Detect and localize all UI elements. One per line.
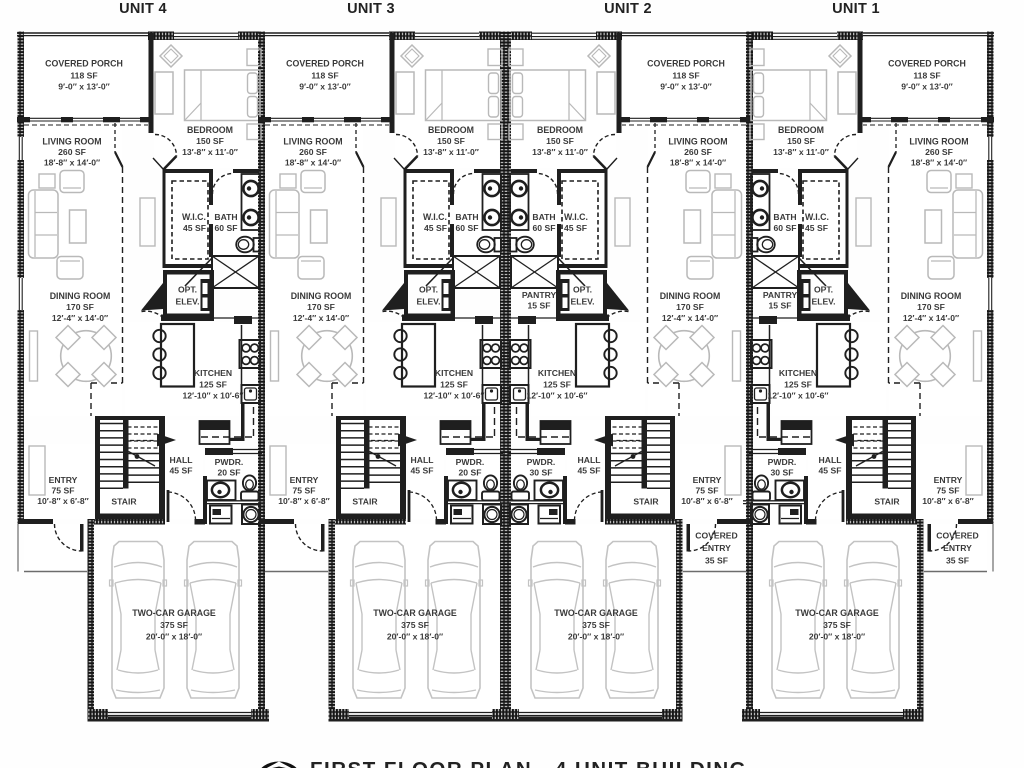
svg-text:12′-4″ x 14′-0″: 12′-4″ x 14′-0″	[903, 313, 959, 323]
svg-text:150 SF: 150 SF	[546, 136, 574, 146]
svg-text:75 SF: 75 SF	[937, 486, 960, 496]
svg-text:118 SF: 118 SF	[70, 71, 97, 81]
svg-text:9′-0″ x 13′-0″: 9′-0″ x 13′-0″	[660, 82, 712, 92]
svg-text:375 SF: 375 SF	[160, 620, 188, 630]
svg-text:45 SF: 45 SF	[819, 466, 842, 476]
svg-text:30 SF: 30 SF	[771, 468, 794, 478]
svg-text:60 SF: 60 SF	[774, 223, 797, 233]
svg-text:45 SF: 45 SF	[183, 223, 206, 233]
svg-text:TWO-CAR GARAGE: TWO-CAR GARAGE	[373, 608, 457, 618]
svg-text:ENTRY: ENTRY	[702, 543, 731, 553]
svg-text:13′-8″ x 11′-0″: 13′-8″ x 11′-0″	[773, 147, 829, 157]
svg-text:TWO-CAR GARAGE: TWO-CAR GARAGE	[554, 608, 638, 618]
svg-text:COVERED PORCH: COVERED PORCH	[888, 59, 966, 69]
svg-text:10′-8″ x 6′-8″: 10′-8″ x 6′-8″	[922, 496, 974, 506]
svg-text:75 SF: 75 SF	[293, 486, 316, 496]
svg-text:TWO-CAR GARAGE: TWO-CAR GARAGE	[132, 608, 216, 618]
svg-text:DINING ROOM: DINING ROOM	[901, 291, 962, 301]
svg-text:375 SF: 375 SF	[401, 620, 429, 630]
svg-text:UNIT 4: UNIT 4	[119, 1, 167, 17]
svg-text:COVERED PORCH: COVERED PORCH	[286, 59, 364, 69]
svg-text:ELEV.: ELEV.	[570, 297, 594, 307]
svg-text:260 SF: 260 SF	[58, 147, 86, 157]
svg-text:35 SF: 35 SF	[705, 556, 728, 566]
svg-text:PWDR.: PWDR.	[768, 457, 797, 467]
svg-text:12′-4″ x 14′-0″: 12′-4″ x 14′-0″	[662, 313, 718, 323]
svg-text:PWDR.: PWDR.	[215, 457, 244, 467]
svg-text:DINING ROOM: DINING ROOM	[291, 291, 352, 301]
svg-text:ELEV.: ELEV.	[175, 297, 199, 307]
svg-text:ELEV.: ELEV.	[416, 297, 440, 307]
svg-text:12′-10″ x 10′-6″: 12′-10″ x 10′-6″	[423, 391, 484, 401]
svg-text:DINING ROOM: DINING ROOM	[660, 291, 721, 301]
svg-text:20′-0″ x 18′-0″: 20′-0″ x 18′-0″	[809, 632, 865, 642]
svg-text:45 SF: 45 SF	[170, 466, 193, 476]
svg-text:KITCHEN: KITCHEN	[435, 368, 473, 378]
svg-text:OPT.: OPT.	[814, 285, 833, 295]
svg-text:260 SF: 260 SF	[299, 147, 327, 157]
svg-text:10′-8″ x 6′-8″: 10′-8″ x 6′-8″	[278, 496, 330, 506]
svg-text:BEDROOM: BEDROOM	[187, 125, 233, 135]
svg-text:UNIT 2: UNIT 2	[604, 1, 652, 17]
svg-text:13′-8″ x 11′-0″: 13′-8″ x 11′-0″	[532, 147, 588, 157]
svg-text:COVERED: COVERED	[936, 531, 979, 541]
svg-text:ENTRY: ENTRY	[943, 543, 972, 553]
svg-text:12′-4″ x 14′-0″: 12′-4″ x 14′-0″	[52, 313, 108, 323]
svg-text:45 SF: 45 SF	[578, 466, 601, 476]
svg-text:PANTRY: PANTRY	[522, 290, 557, 300]
svg-text:ELEV.: ELEV.	[811, 297, 835, 307]
svg-text:STAIR: STAIR	[352, 497, 378, 507]
svg-text:15 SF: 15 SF	[528, 301, 551, 311]
svg-text:12′-10″ x 10′-6″: 12′-10″ x 10′-6″	[182, 391, 243, 401]
svg-text:LIVING ROOM: LIVING ROOM	[283, 137, 342, 147]
svg-text:75 SF: 75 SF	[696, 486, 719, 496]
svg-text:COVERED PORCH: COVERED PORCH	[647, 59, 725, 69]
svg-text:PWDR.: PWDR.	[456, 457, 485, 467]
svg-text:45 SF: 45 SF	[424, 223, 447, 233]
svg-text:KITCHEN: KITCHEN	[779, 368, 817, 378]
svg-text:375 SF: 375 SF	[582, 620, 610, 630]
svg-text:170 SF: 170 SF	[307, 302, 335, 312]
svg-text:170 SF: 170 SF	[66, 302, 94, 312]
svg-text:9′-0″ x 13′-0″: 9′-0″ x 13′-0″	[299, 82, 351, 92]
svg-text:20′-0″ x 18′-0″: 20′-0″ x 18′-0″	[146, 632, 202, 642]
svg-text:118 SF: 118 SF	[311, 71, 338, 81]
svg-text:TWO-CAR GARAGE: TWO-CAR GARAGE	[795, 608, 879, 618]
svg-text:BEDROOM: BEDROOM	[428, 125, 474, 135]
svg-text:125 SF: 125 SF	[543, 380, 571, 390]
svg-text:W.I.C.: W.I.C.	[564, 212, 588, 222]
svg-text:OPT.: OPT.	[178, 285, 197, 295]
svg-text:BEDROOM: BEDROOM	[537, 125, 583, 135]
svg-text:18′-8″ x 14′-0″: 18′-8″ x 14′-0″	[44, 158, 100, 168]
svg-text:118 SF: 118 SF	[672, 71, 699, 81]
svg-text:170 SF: 170 SF	[917, 302, 945, 312]
svg-text:COVERED: COVERED	[695, 531, 738, 541]
svg-text:STAIR: STAIR	[633, 497, 659, 507]
svg-text:260 SF: 260 SF	[925, 147, 953, 157]
svg-text:PANTRY: PANTRY	[763, 290, 798, 300]
svg-text:BATH: BATH	[773, 212, 796, 222]
svg-text:UNIT 3: UNIT 3	[347, 1, 395, 17]
svg-text:45 SF: 45 SF	[564, 223, 587, 233]
svg-text:20 SF: 20 SF	[218, 468, 241, 478]
svg-text:W.I.C.: W.I.C.	[182, 212, 206, 222]
svg-text:HALL: HALL	[578, 455, 601, 465]
svg-text:BATH: BATH	[455, 212, 478, 222]
svg-text:375 SF: 375 SF	[823, 620, 851, 630]
svg-text:ENTRY: ENTRY	[934, 475, 963, 485]
svg-text:FIRST FLOOR PLAN - 4 UNIT BUIL: FIRST FLOOR PLAN - 4 UNIT BUILDING	[310, 758, 747, 768]
svg-text:170 SF: 170 SF	[676, 302, 704, 312]
svg-text:LIVING ROOM: LIVING ROOM	[668, 137, 727, 147]
svg-text:12′-10″ x 10′-6″: 12′-10″ x 10′-6″	[526, 391, 587, 401]
svg-text:ENTRY: ENTRY	[49, 475, 78, 485]
svg-text:20 SF: 20 SF	[459, 468, 482, 478]
svg-text:LIVING ROOM: LIVING ROOM	[909, 137, 968, 147]
svg-text:18′-8″ x 14′-0″: 18′-8″ x 14′-0″	[670, 158, 726, 168]
svg-text:30 SF: 30 SF	[530, 468, 553, 478]
svg-text:60 SF: 60 SF	[215, 223, 238, 233]
svg-text:118 SF: 118 SF	[913, 71, 940, 81]
svg-text:HALL: HALL	[819, 455, 842, 465]
svg-text:KITCHEN: KITCHEN	[194, 368, 232, 378]
svg-text:BATH: BATH	[214, 212, 237, 222]
svg-text:13′-8″ x 11′-0″: 13′-8″ x 11′-0″	[423, 147, 479, 157]
svg-text:35 SF: 35 SF	[946, 556, 969, 566]
svg-text:45 SF: 45 SF	[411, 466, 434, 476]
svg-text:20′-0″ x 18′-0″: 20′-0″ x 18′-0″	[568, 632, 624, 642]
svg-text:10′-8″ x 6′-8″: 10′-8″ x 6′-8″	[681, 496, 733, 506]
svg-text:9′-0″ x 13′-0″: 9′-0″ x 13′-0″	[901, 82, 953, 92]
svg-text:60 SF: 60 SF	[533, 223, 556, 233]
svg-text:13′-8″ x 11′-0″: 13′-8″ x 11′-0″	[182, 147, 238, 157]
svg-text:ENTRY: ENTRY	[693, 475, 722, 485]
svg-text:150 SF: 150 SF	[437, 136, 465, 146]
svg-text:W.I.C.: W.I.C.	[423, 212, 447, 222]
svg-text:15 SF: 15 SF	[769, 301, 792, 311]
svg-text:125 SF: 125 SF	[784, 380, 812, 390]
svg-text:BATH: BATH	[532, 212, 555, 222]
svg-text:UNIT 1: UNIT 1	[832, 1, 880, 17]
svg-text:10′-8″ x 6′-8″: 10′-8″ x 6′-8″	[37, 496, 89, 506]
svg-text:W.I.C.: W.I.C.	[805, 212, 829, 222]
svg-text:12′-4″ x 14′-0″: 12′-4″ x 14′-0″	[293, 313, 349, 323]
svg-text:75 SF: 75 SF	[52, 486, 75, 496]
svg-text:9′-0″ x 13′-0″: 9′-0″ x 13′-0″	[58, 82, 110, 92]
svg-text:150 SF: 150 SF	[196, 136, 224, 146]
svg-text:125 SF: 125 SF	[199, 380, 227, 390]
svg-text:OPT.: OPT.	[419, 285, 438, 295]
svg-text:PWDR.: PWDR.	[527, 457, 556, 467]
svg-text:COVERED PORCH: COVERED PORCH	[45, 59, 123, 69]
svg-text:KITCHEN: KITCHEN	[538, 368, 576, 378]
svg-text:HALL: HALL	[170, 455, 193, 465]
svg-text:45 SF: 45 SF	[805, 223, 828, 233]
svg-text:260 SF: 260 SF	[684, 147, 712, 157]
svg-text:DINING ROOM: DINING ROOM	[50, 291, 111, 301]
svg-text:LIVING ROOM: LIVING ROOM	[42, 137, 101, 147]
svg-text:18′-8″ x 14′-0″: 18′-8″ x 14′-0″	[911, 158, 967, 168]
svg-text:150 SF: 150 SF	[787, 136, 815, 146]
svg-text:ENTRY: ENTRY	[290, 475, 319, 485]
svg-text:12′-10″ x 10′-6″: 12′-10″ x 10′-6″	[767, 391, 828, 401]
svg-text:20′-0″ x 18′-0″: 20′-0″ x 18′-0″	[387, 632, 443, 642]
svg-text:60 SF: 60 SF	[456, 223, 479, 233]
svg-text:18′-8″ x 14′-0″: 18′-8″ x 14′-0″	[285, 158, 341, 168]
svg-text:STAIR: STAIR	[874, 497, 900, 507]
svg-text:BEDROOM: BEDROOM	[778, 125, 824, 135]
svg-text:HALL: HALL	[411, 455, 434, 465]
svg-text:125 SF: 125 SF	[440, 380, 468, 390]
svg-text:OPT.: OPT.	[573, 285, 592, 295]
svg-text:STAIR: STAIR	[111, 497, 137, 507]
